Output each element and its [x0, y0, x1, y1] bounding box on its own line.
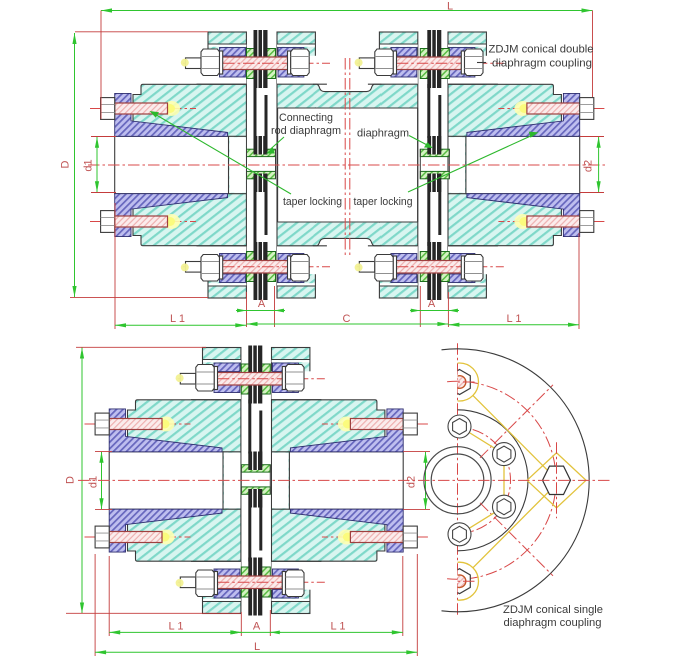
- svg-text:diaphragm: diaphragm: [357, 128, 409, 140]
- svg-text:d1: d1: [88, 476, 100, 488]
- svg-text:d2: d2: [406, 476, 418, 488]
- svg-text:diaphragm coupling: diaphragm coupling: [504, 617, 602, 629]
- svg-text:L 1: L 1: [507, 313, 522, 325]
- svg-text:A: A: [253, 621, 261, 633]
- svg-text:D: D: [65, 476, 77, 484]
- svg-text:diaphragm coupling: diaphragm coupling: [492, 58, 592, 70]
- svg-text:taper locking: taper locking: [283, 196, 342, 208]
- svg-text:rod diaphragm: rod diaphragm: [271, 125, 341, 137]
- svg-text:ZDJM conical single: ZDJM conical single: [503, 604, 603, 616]
- svg-text:d2: d2: [583, 160, 595, 172]
- svg-text:d1: d1: [83, 159, 95, 171]
- svg-text:L 1: L 1: [169, 621, 184, 633]
- svg-text:taper locking: taper locking: [354, 196, 413, 208]
- svg-text:ZDJM conical double: ZDJM conical double: [489, 44, 594, 56]
- svg-text:Connecting: Connecting: [279, 112, 333, 124]
- svg-text:C: C: [343, 313, 351, 325]
- svg-text:A: A: [258, 298, 266, 310]
- svg-text:L 1: L 1: [331, 621, 346, 633]
- svg-text:L: L: [447, 1, 453, 13]
- svg-text:L 1: L 1: [170, 313, 185, 325]
- svg-text:L: L: [254, 641, 260, 653]
- svg-text:D: D: [60, 160, 72, 168]
- svg-text:A: A: [428, 298, 436, 310]
